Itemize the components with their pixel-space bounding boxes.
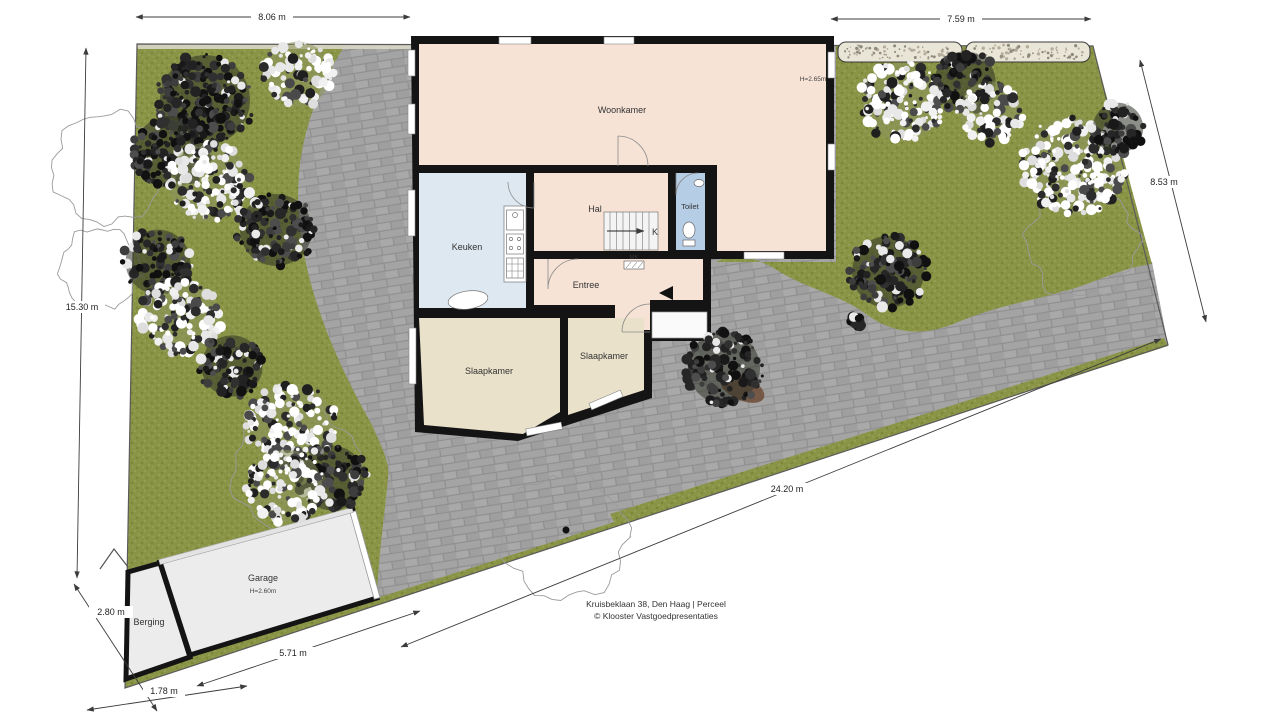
room-label-garage: Garage bbox=[248, 573, 278, 583]
hedge-speckle bbox=[991, 51, 993, 53]
hedge-speckle bbox=[1005, 57, 1008, 60]
hedge-speckle bbox=[917, 46, 919, 48]
caption-address: Kruisbeklaan 38, Den Haag | Perceel bbox=[586, 599, 726, 609]
hedge-speckle bbox=[982, 47, 985, 50]
hedge-speckle bbox=[1074, 44, 1077, 47]
hedge-speckle bbox=[1056, 49, 1058, 51]
room-label-hal: Hal bbox=[588, 204, 602, 214]
hedge-speckle bbox=[871, 55, 873, 57]
hedge-speckle bbox=[914, 56, 917, 59]
woonkamer-height-label: H=2.65m bbox=[800, 76, 827, 83]
hedge-speckle bbox=[856, 54, 858, 56]
hedge-speckle bbox=[1078, 47, 1080, 49]
hedge-speckle bbox=[994, 44, 996, 46]
hedge-speckle bbox=[874, 47, 877, 50]
garage-height-label: H=2.60m bbox=[250, 588, 277, 595]
dim-garage-front-label: 5.71 m bbox=[279, 648, 307, 658]
hedge-speckle bbox=[893, 44, 896, 47]
hedge-speckle bbox=[853, 52, 856, 55]
dim-right-side-label: 8.53 m bbox=[1150, 177, 1178, 187]
hedge-speckle bbox=[894, 51, 896, 53]
hedge-speckle bbox=[897, 55, 900, 58]
meter-cupboard bbox=[624, 261, 644, 269]
hedge-speckle bbox=[1056, 46, 1058, 48]
hedge-speckle bbox=[1014, 58, 1015, 59]
hedge-speckle bbox=[920, 56, 922, 58]
hedge-speckle bbox=[901, 55, 903, 57]
room-label-keuken: Keuken bbox=[452, 242, 483, 252]
hedge-speckle bbox=[1044, 50, 1046, 52]
hedge-speckle bbox=[946, 48, 948, 50]
hedge-speckle bbox=[973, 47, 976, 50]
porch bbox=[652, 312, 707, 338]
hedge-speckle bbox=[866, 48, 867, 49]
hedge-speckle bbox=[850, 47, 851, 48]
hedge-speckle bbox=[1065, 49, 1067, 51]
hedge-speckle bbox=[858, 52, 861, 55]
hedge-speckle bbox=[880, 53, 881, 54]
hedge-speckle bbox=[904, 45, 906, 47]
hedge-speckle bbox=[1038, 50, 1039, 51]
caption-credit: © Klooster Vastgoedpresentaties bbox=[594, 611, 718, 621]
hedge-speckle bbox=[913, 49, 916, 52]
hedge-speckle bbox=[1050, 54, 1053, 57]
dim-top-left-label: 8.06 m bbox=[258, 12, 286, 22]
hedge-speckle bbox=[1007, 44, 1010, 47]
hedge-speckle bbox=[941, 50, 944, 53]
hedge-speckle bbox=[884, 54, 886, 56]
hedge-speckle bbox=[859, 45, 862, 48]
hedge-speckle bbox=[997, 46, 1000, 49]
hedge-speckle bbox=[1047, 57, 1050, 60]
hedge-speckle bbox=[1008, 47, 1011, 50]
hedge-speckle bbox=[879, 58, 881, 60]
dim-left-side-label: 15.30 m bbox=[66, 302, 99, 312]
hedge-speckle bbox=[1063, 55, 1065, 57]
hedge-speckle bbox=[1003, 55, 1006, 58]
hedge-speckle bbox=[1022, 56, 1024, 58]
hedge-speckle bbox=[889, 57, 891, 59]
hedge-speckle bbox=[1001, 52, 1004, 55]
hedge-speckle bbox=[927, 56, 929, 58]
hedge-speckle bbox=[1002, 45, 1003, 46]
hedge-speckle bbox=[882, 57, 884, 59]
tree-dot-icon bbox=[563, 527, 570, 534]
hedge-speckle bbox=[847, 56, 849, 58]
room-slaapkamer-links bbox=[419, 318, 560, 434]
hedge-speckle bbox=[1005, 51, 1008, 54]
hedge-speckle bbox=[857, 44, 858, 45]
hedge-speckle bbox=[846, 48, 848, 50]
hedge-speckle bbox=[1051, 52, 1053, 54]
hedge-speckle bbox=[1057, 52, 1059, 54]
hedge-speckle bbox=[1047, 52, 1050, 55]
hedge-speckle bbox=[1027, 53, 1030, 56]
hedge-speckle bbox=[923, 50, 925, 52]
hedge-speckle bbox=[1071, 53, 1074, 56]
hedge-speckle bbox=[899, 48, 901, 50]
hedge-speckle bbox=[917, 52, 918, 53]
room-label-entree: Entree bbox=[573, 280, 600, 290]
hedge-speckle bbox=[941, 53, 944, 56]
hedge-speckle bbox=[848, 51, 850, 53]
hedge-speckle bbox=[1041, 51, 1043, 53]
hedge-speckle bbox=[1037, 52, 1040, 55]
hedge-speckle bbox=[844, 50, 846, 52]
hedge-speckle bbox=[1053, 54, 1054, 55]
hedge-speckle bbox=[989, 48, 991, 50]
stairs-direction-label: K bbox=[652, 227, 658, 237]
hedge-speckle bbox=[1081, 51, 1084, 54]
dim-top-right-label: 7.59 m bbox=[947, 14, 975, 24]
hedge-speckle bbox=[872, 51, 874, 53]
hedge-speckle bbox=[883, 45, 886, 48]
hedge-speckle bbox=[1065, 51, 1067, 53]
hedge-speckle bbox=[1008, 52, 1010, 54]
hedge-speckle bbox=[1056, 58, 1058, 60]
hedge-speckle bbox=[931, 55, 933, 57]
hedge-speckle bbox=[992, 47, 995, 50]
hedge-speckle bbox=[922, 47, 923, 48]
hedge-speckle bbox=[1000, 57, 1002, 59]
hedge-speckle bbox=[849, 54, 851, 56]
hedge-speckle bbox=[885, 54, 887, 56]
hedge-speckle bbox=[933, 55, 936, 58]
room-label-slaapkamer-links: Slaapkamer bbox=[465, 366, 513, 376]
hedge-speckle bbox=[1032, 52, 1034, 54]
site-plan-svg: 8.06 m 7.59 m 8.53 m 15.30 m 2.80 m 1.78… bbox=[0, 0, 1280, 720]
hedge-speckle bbox=[903, 49, 905, 51]
room-label-slaapkamer-rechts: Slaapkamer bbox=[580, 351, 628, 361]
hedge-speckle bbox=[856, 51, 859, 54]
hedge-speckle bbox=[1014, 48, 1017, 51]
dim-driveway-label: 24.20 m bbox=[771, 484, 804, 494]
hedge-speckle bbox=[1068, 55, 1071, 58]
hedge-speckle bbox=[1010, 50, 1013, 53]
room-label-berging: Berging bbox=[133, 617, 164, 627]
hedge-speckle bbox=[918, 51, 920, 53]
staircase bbox=[604, 212, 658, 250]
hedge-speckle bbox=[1075, 56, 1078, 59]
dim-bottom-left-label: 2.80 m bbox=[97, 607, 125, 617]
room-label-toilet: Toilet bbox=[681, 202, 699, 211]
hedge-speckle bbox=[1020, 54, 1021, 55]
hedge-speckle bbox=[1081, 55, 1083, 57]
hedge-speckle bbox=[862, 50, 864, 52]
room-label-woonkamer: Woonkamer bbox=[598, 105, 646, 115]
dim-plot-bottom-label: 1.78 m bbox=[150, 686, 178, 696]
hedge-speckle bbox=[1050, 47, 1053, 50]
meter-cupboard-label: MK bbox=[630, 255, 639, 261]
hedge-speckle bbox=[883, 50, 886, 53]
floorplan-page: 8.06 m 7.59 m 8.53 m 15.30 m 2.80 m 1.78… bbox=[0, 0, 1280, 720]
hedge-speckle bbox=[887, 57, 888, 58]
hedge-speckle bbox=[1039, 48, 1041, 50]
hedge-speckle bbox=[1038, 58, 1040, 60]
hedge-speckle bbox=[1026, 45, 1029, 48]
hedge-speckle bbox=[1058, 58, 1060, 60]
hedge-speckle bbox=[1073, 58, 1074, 59]
hedge-speckle bbox=[975, 45, 977, 47]
gate-mark bbox=[100, 549, 128, 569]
hedge-speckle bbox=[938, 53, 941, 56]
hedge-speckle bbox=[887, 48, 889, 50]
hedge-speckle bbox=[868, 47, 871, 50]
hedge-speckle bbox=[1020, 50, 1021, 51]
hedge-speckle bbox=[923, 52, 926, 55]
